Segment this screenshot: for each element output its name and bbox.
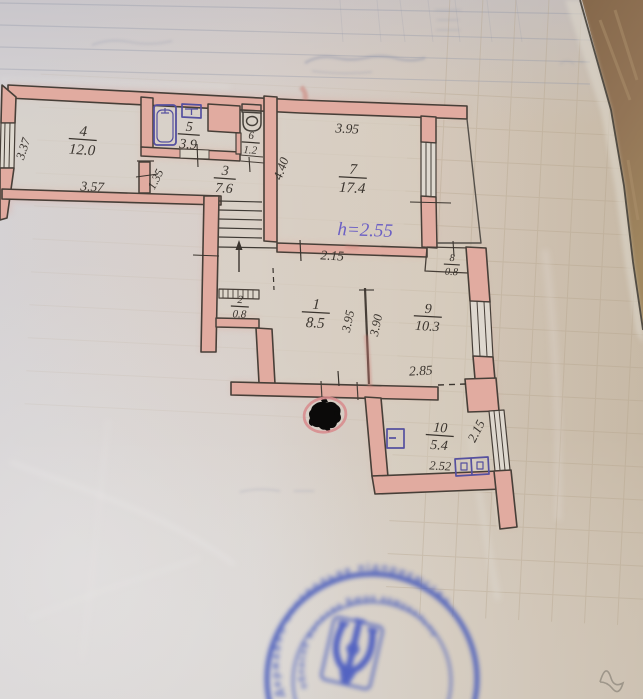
svg-text:2.52: 2.52 [429, 458, 452, 473]
svg-text:1.2: 1.2 [243, 144, 258, 157]
svg-text:5: 5 [185, 120, 193, 135]
svg-text:12.0: 12.0 [68, 142, 96, 160]
svg-text:3.9: 3.9 [178, 137, 198, 153]
svg-text:2.85: 2.85 [409, 362, 434, 378]
svg-text:2.15: 2.15 [320, 247, 345, 263]
svg-text:10: 10 [433, 421, 448, 437]
svg-text:3: 3 [220, 164, 229, 180]
svg-text:1: 1 [312, 297, 320, 313]
svg-text:h=2.55: h=2.55 [337, 219, 393, 242]
svg-text:3.57: 3.57 [79, 178, 106, 194]
svg-text:9: 9 [424, 302, 432, 317]
svg-text:0.8: 0.8 [232, 308, 247, 321]
svg-text:5.4: 5.4 [430, 438, 449, 454]
svg-text:10.3: 10.3 [415, 319, 440, 335]
svg-text:0.8: 0.8 [445, 267, 459, 279]
svg-text:8.5: 8.5 [305, 315, 325, 332]
svg-text:3.95: 3.95 [334, 120, 360, 136]
svg-text:7.6: 7.6 [215, 181, 234, 197]
svg-text:17.4: 17.4 [339, 180, 367, 197]
